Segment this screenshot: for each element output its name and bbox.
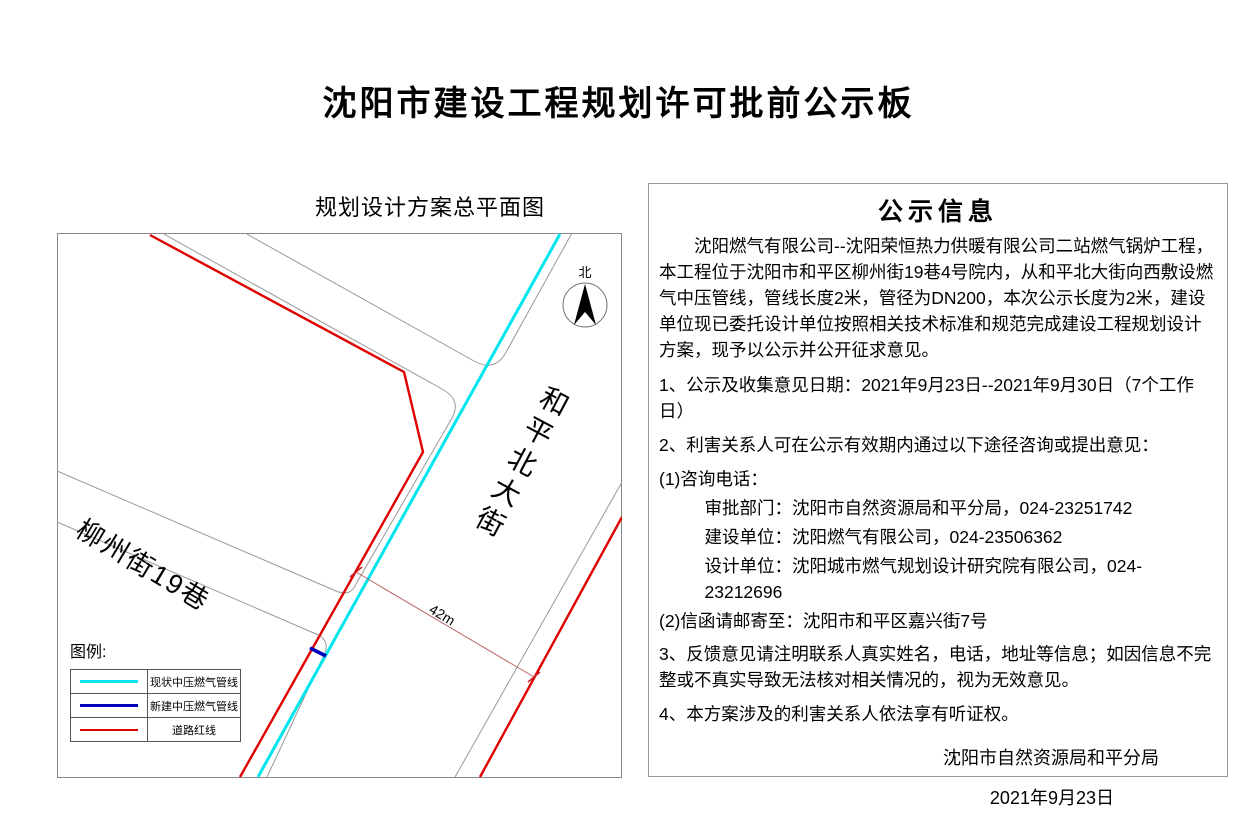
phone-line-approval: 审批部门：沈阳市自然资源局和平分局，024-23251742 [659,496,1217,522]
notice-intro: 沈阳燃气有限公司--沈阳荣恒热力供暖有限公司二站燃气锅炉工程，本工程位于沈阳市和… [659,234,1217,363]
notice-item-4: 4、本方案涉及的利害关系人依法享有听证权。 [659,702,1217,728]
phone-line-designer: 设计单位：沈阳城市燃气规划设计研究院有限公司，024-23212696 [659,554,1217,606]
site-plan-title: 规划设计方案总平面图 [230,190,630,222]
notice-panel: 公示信息 沈阳燃气有限公司--沈阳荣恒热力供暖有限公司二站燃气锅炉工程，本工程位… [648,183,1228,777]
legend-row-road-redline: 道路红线 [71,718,241,742]
page-title: 沈阳市建设工程规划许可批前公示板 [0,76,1237,125]
legend-row-existing-pipeline: 现状中压燃气管线 [71,670,241,694]
phone-line-builder: 建设单位：沈阳燃气有限公司，024-23506362 [659,525,1217,551]
map-legend: 图例: 现状中压燃气管线 新建中压燃气管线 [70,638,241,742]
notice-title: 公示信息 [659,192,1217,228]
signature: 沈阳市自然资源局和平分局 [659,744,1217,770]
north-label: 北 [578,265,591,280]
notice-item-1: 1、公示及收集意见日期：2021年9月23日--2021年9月30日（7个工作日… [659,373,1217,425]
legend-swatch-existing-pipeline [80,680,138,683]
legend-label: 现状中压燃气管线 [148,670,241,694]
notice-item-2: 2、利害关系人可在公示有效期内通过以下途径咨询或提出意见： [659,433,1217,459]
notice-item-3: 3、反馈意见请注明联系人真实姓名，电话，地址等信息；如因信息不完整或不真实导致无… [659,642,1217,694]
legend-title: 图例: [70,638,241,662]
phone-header: (1)咨询电话： [659,467,1217,493]
notice-date: 2021年9月23日 [659,784,1217,810]
legend-swatch-road-redline [80,729,138,731]
site-plan-map: 42m 北 和平北大街 柳州街19巷 图例: 现状中压燃气管线 [57,233,622,778]
legend-row-new-pipeline: 新建中压燃气管线 [71,694,241,718]
legend-swatch-new-pipeline [80,704,138,707]
legend-label: 道路红线 [148,718,241,742]
mail-line: (2)信函请邮寄至：沈阳市和平区嘉兴街7号 [659,609,1217,635]
notice-board-page: 沈阳市建设工程规划许可批前公示板 规划设计方案总平面图 42m [0,0,1237,819]
legend-table: 现状中压燃气管线 新建中压燃气管线 道路红线 [70,669,241,742]
legend-label: 新建中压燃气管线 [148,694,241,718]
